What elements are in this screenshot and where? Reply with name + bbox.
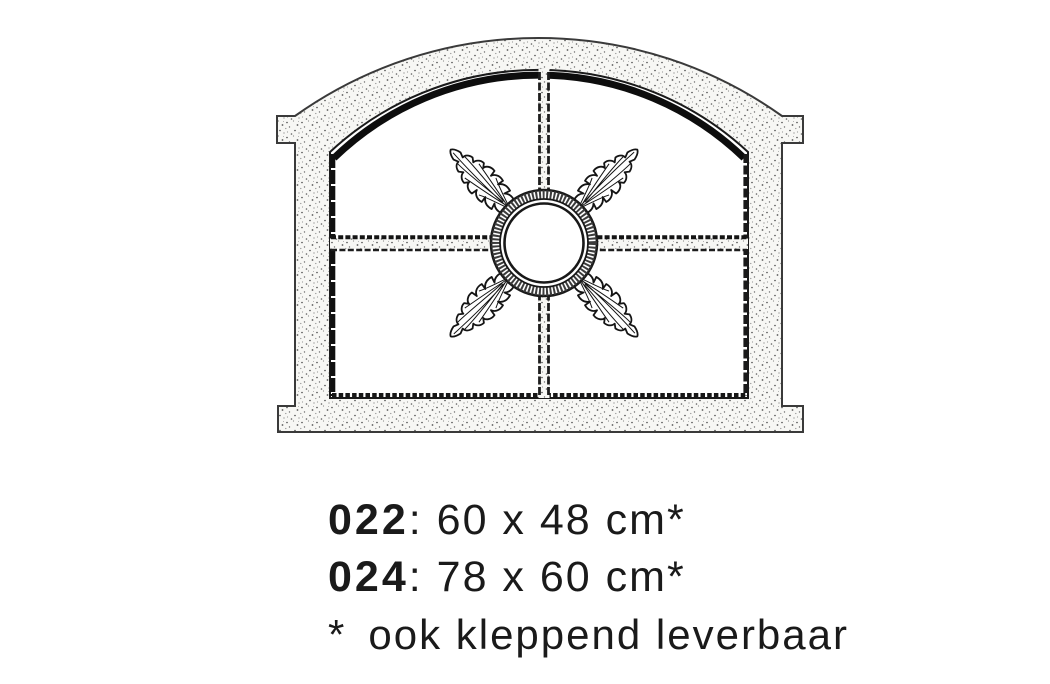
product-specs: 022: 60 x 48 cm* 024: 78 x 60 cm* *ook k… [328, 492, 849, 664]
footnote-marker: * [667, 496, 686, 544]
product-line-024: 024: 78 x 60 cm* [328, 549, 849, 606]
product-code: 022 [328, 496, 409, 544]
center-ring [491, 190, 597, 296]
separator: : [409, 553, 437, 601]
footnote: *ook kleppend leverbaar [328, 606, 849, 664]
catalog-page: Technical line drawing of an arched cast… [0, 0, 1050, 684]
separator: : [409, 496, 437, 544]
product-size: 78 x 60 cm [437, 553, 667, 601]
window-illustration: Technical line drawing of an arched cast… [0, 0, 1050, 470]
product-code: 024 [328, 553, 409, 601]
footnote-marker: * [667, 553, 686, 601]
footnote-text: ook kleppend leverbaar [368, 611, 849, 658]
footnote-marker: * [328, 611, 346, 658]
product-size: 60 x 48 cm [437, 496, 667, 544]
product-line-022: 022: 60 x 48 cm* [328, 492, 849, 549]
